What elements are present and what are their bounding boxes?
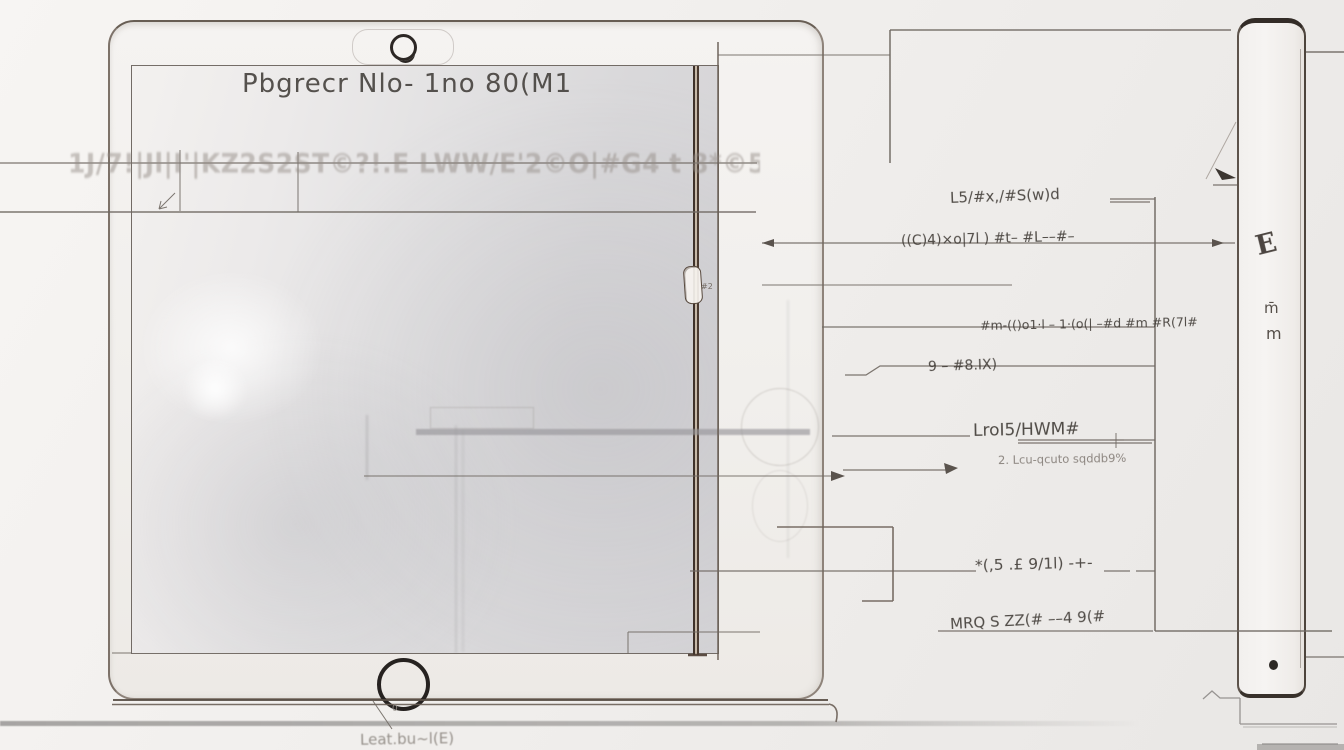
callout-label: LroI5/HWM#: [973, 420, 1080, 441]
leader-a-double: [1110, 199, 1155, 202]
screen-sketch-line: [462, 430, 464, 652]
callout-label: ((C)4)×o|7l ) #t– #L––#–: [901, 230, 1075, 250]
leader-f-double: [1018, 440, 1155, 443]
callout-label: L5/#x,/#S(w)d: [950, 186, 1060, 206]
callout-label: 9 – #8.IX): [928, 358, 998, 376]
callout-sublabel: 2. Lcu-qcuto sqddb9%: [998, 452, 1127, 467]
side-view-port-dot: [1269, 660, 1278, 670]
screen-smudge: [366, 415, 368, 480]
bottom-note: Leat.bu~l(E): [360, 730, 454, 748]
screen-sketch-rect: [430, 407, 534, 429]
callout-label: *(,5 .£ 9/1l) -+-: [975, 554, 1093, 574]
front-camera-icon: [390, 34, 417, 61]
callout-label: #m-(()o1·l – 1·(o(| –#d #m #R(7l#: [980, 315, 1198, 333]
side-dark-arrow: [1215, 168, 1236, 180]
arrowhead-right: [831, 471, 845, 481]
clip-mark: #2: [701, 283, 713, 292]
bottom-note-mark: 0: [392, 705, 398, 715]
side-view-mark: m̄: [1264, 300, 1279, 317]
leader-f-tick: [1110, 433, 1124, 448]
arrowhead-right: [1212, 239, 1224, 247]
bezel-sketch-oval: [752, 470, 808, 542]
bezel-sketch-circle: [741, 388, 819, 466]
dimension-bar: [416, 429, 810, 435]
screen-sketch-line: [455, 425, 457, 653]
arrowhead-right: [944, 463, 958, 474]
table-edge-line: [0, 721, 1140, 726]
leader-e-jog: [845, 366, 1155, 375]
tablet-bottom-shadow: [112, 704, 837, 722]
watermark-text: 1J/7!|Jl|I'|KZ2S2ST©?!.E LWW/E'2©O|#G4 t…: [68, 148, 760, 179]
home-button-icon: [377, 658, 430, 711]
screen-reflection-blob: [182, 360, 248, 418]
tablet-side-view: [1237, 18, 1306, 698]
side-diagonal-leader: [1206, 122, 1236, 179]
callout-label: MRQ S ZZ(# ––4 9(#: [950, 608, 1106, 633]
drawing-title: Pbgrecr Nlo- 1no 80(M1: [242, 70, 572, 99]
side-view-mark: m: [1266, 325, 1282, 343]
technical-drawing-canvas: Pbgrecr Nlo- 1no 80(M1 1J/7!|Jl|I'|KZ2S2…: [0, 0, 1344, 750]
